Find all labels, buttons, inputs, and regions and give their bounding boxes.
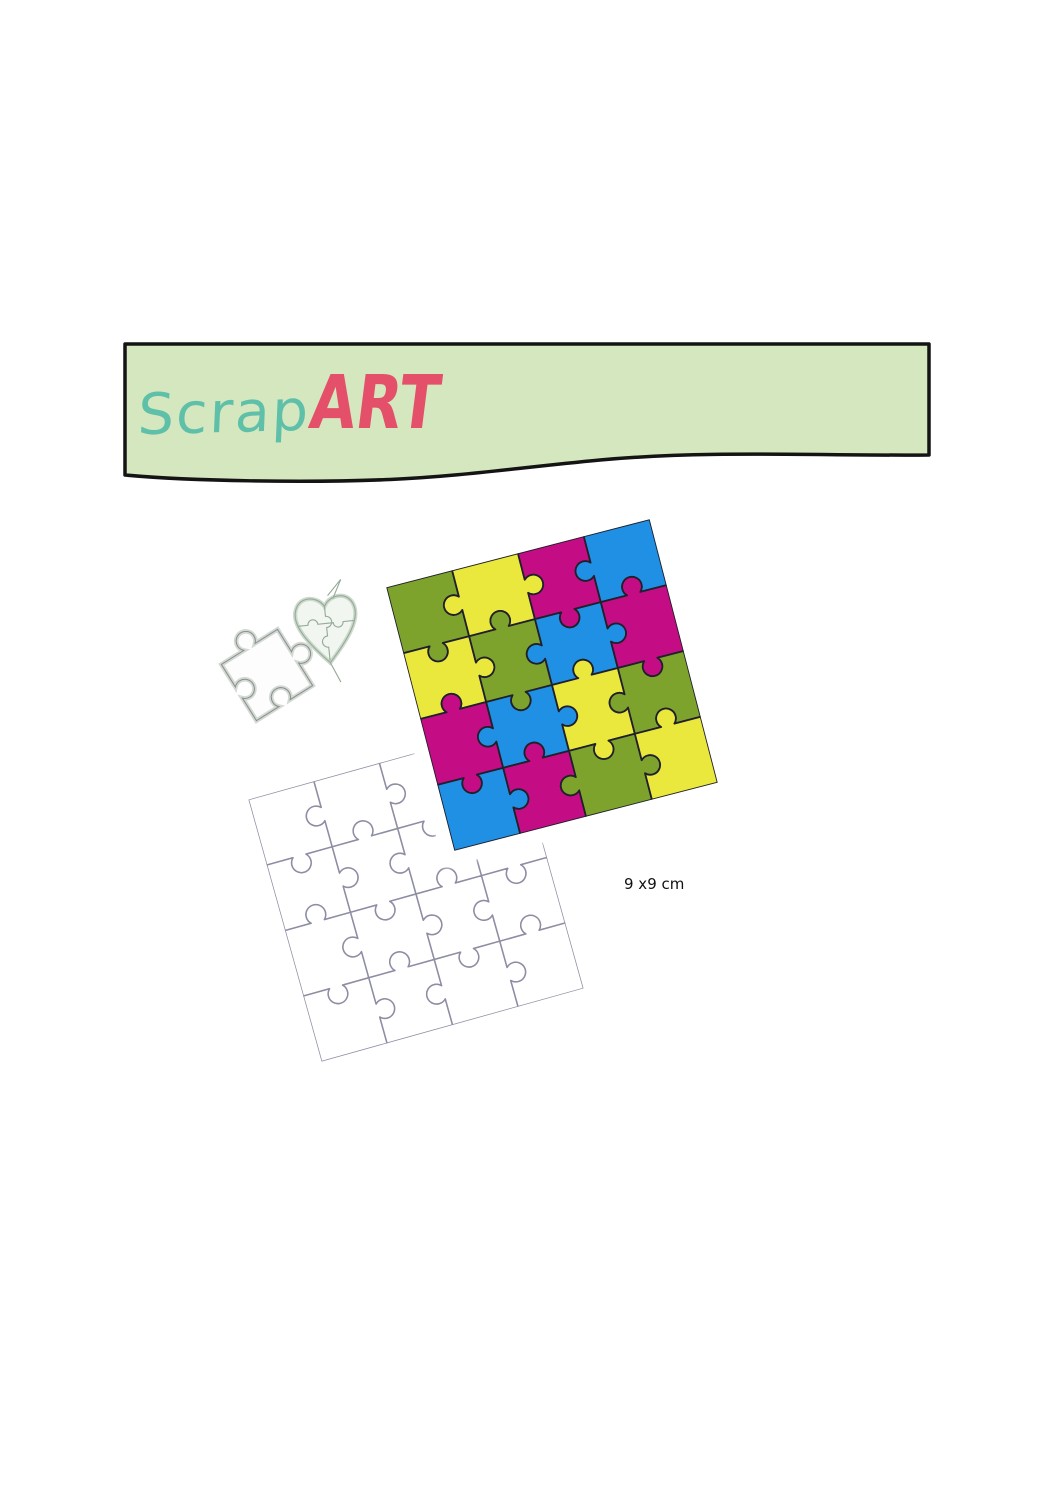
dimension-label: 9 x9 cm xyxy=(624,875,684,893)
scrapart-product-page: ScrapART 9 x9 cm xyxy=(0,0,1058,1497)
brand-banner: ScrapART xyxy=(120,340,934,492)
colored-puzzle-image xyxy=(386,519,717,850)
brand-art-text: ART xyxy=(306,366,445,440)
brand-logo: ScrapART xyxy=(138,370,467,444)
brand-scrap-text: Scrap xyxy=(137,383,312,444)
